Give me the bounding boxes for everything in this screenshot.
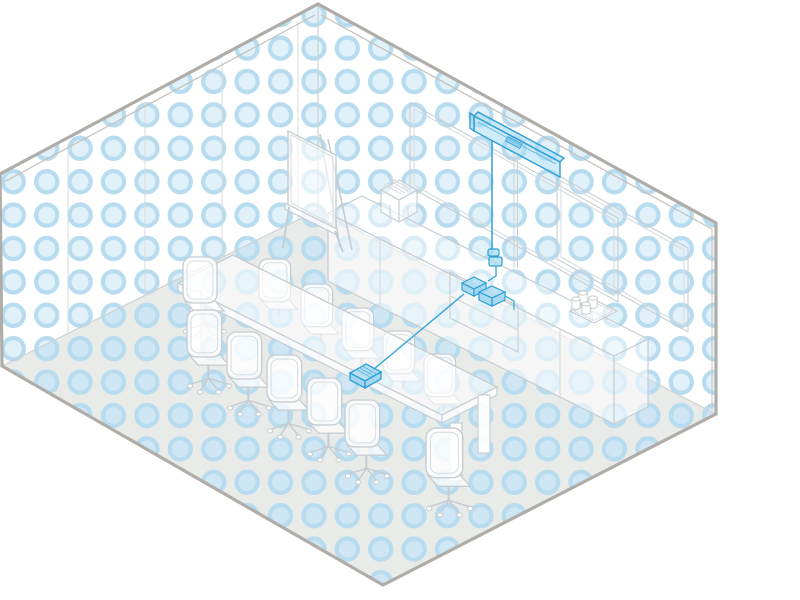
isometric-room-svg [0,0,800,600]
meeting-room-illustration [0,0,800,600]
cup [572,297,580,310]
cup [582,302,590,315]
